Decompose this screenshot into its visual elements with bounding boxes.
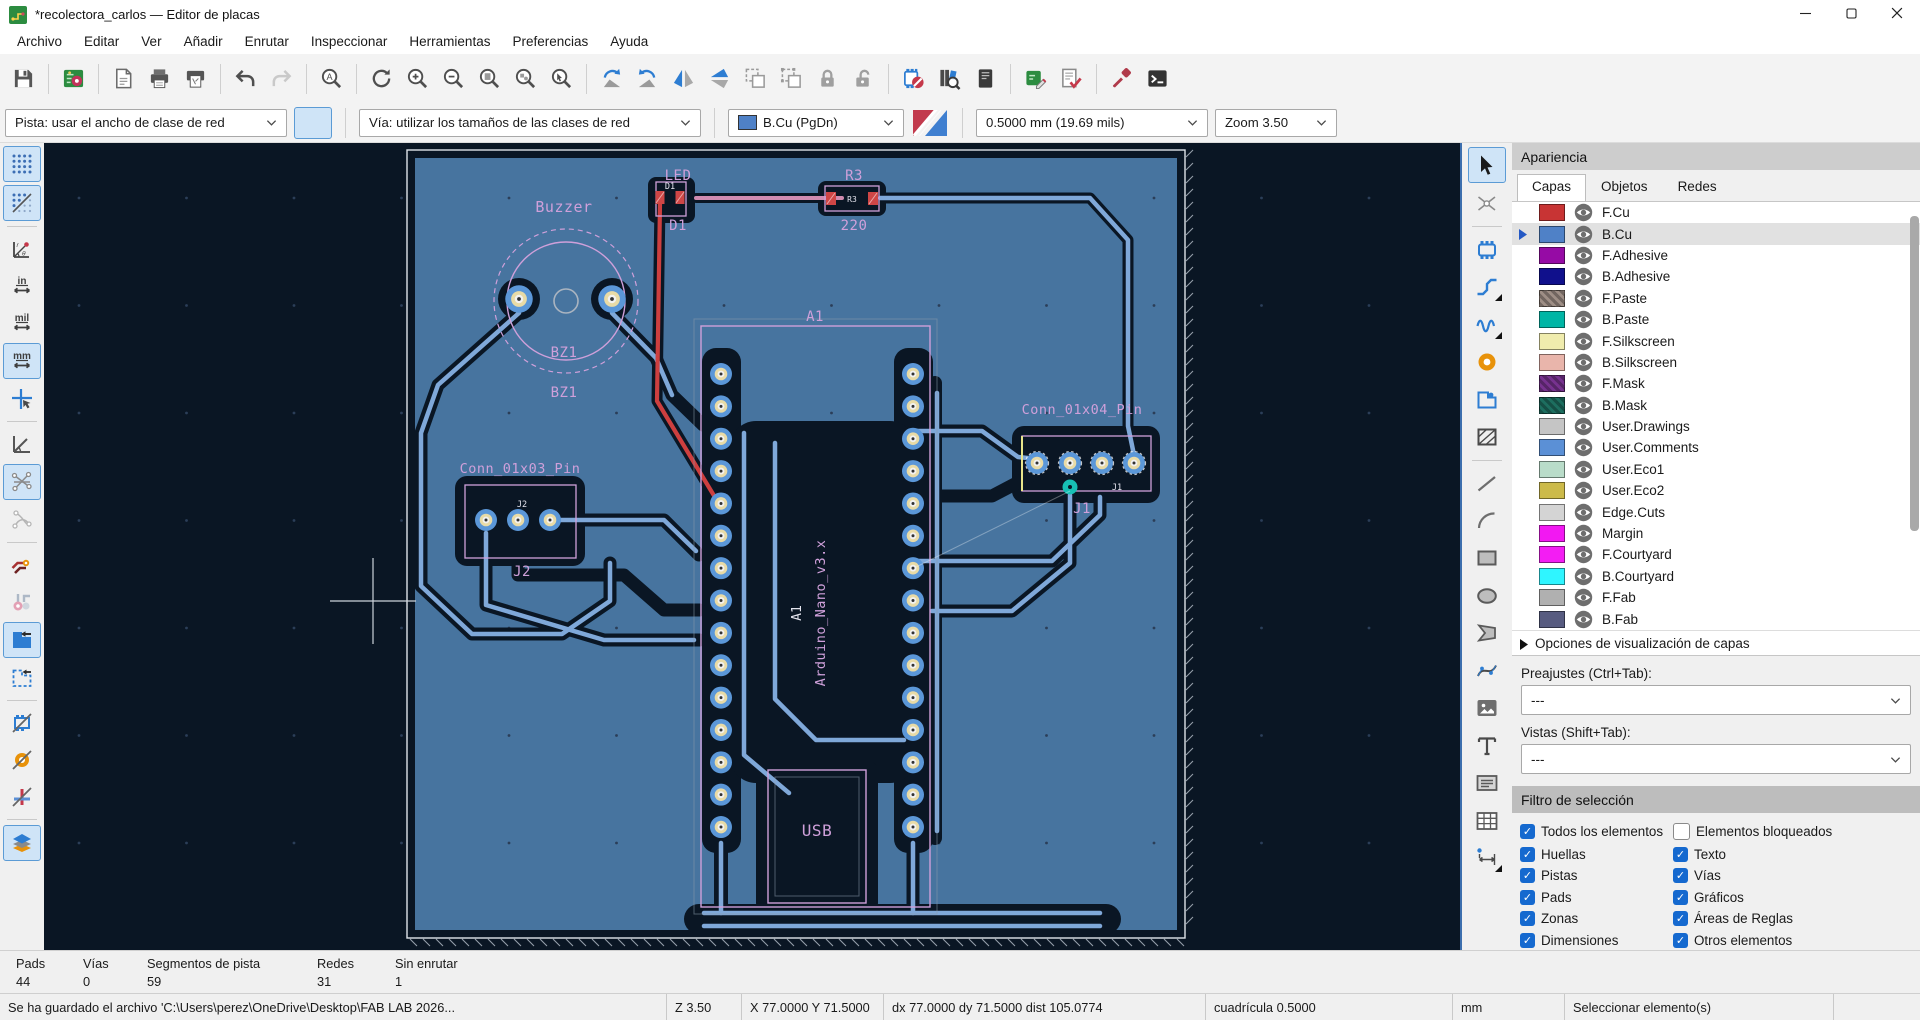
menu-enrutar[interactable]: Enrutar: [234, 32, 300, 51]
layer-color-swatch[interactable]: [1539, 354, 1565, 371]
layer-color-swatch: [738, 115, 757, 130]
menu-anadir[interactable]: Añadir: [173, 32, 234, 51]
filter-item-label: Vías: [1694, 868, 1721, 883]
layer-name: F.Courtyard: [1602, 547, 1672, 562]
svg-text:θ: θ: [22, 251, 26, 258]
presets-value: ---: [1531, 693, 1545, 708]
presets-dropdown[interactable]: ---: [1521, 685, 1911, 715]
led-ref-small[interactable]: D1: [665, 182, 675, 192]
toolbar-separator: [1472, 460, 1502, 461]
board-setup-button[interactable]: [56, 61, 91, 96]
redo-icon: [270, 67, 293, 90]
eye-icon[interactable]: [1574, 524, 1593, 543]
tab-redes[interactable]: Redes: [1663, 174, 1732, 201]
checkbox-icon[interactable]: ✓: [1673, 890, 1688, 905]
maximize-icon: [1846, 6, 1857, 24]
angle-45-icon: [10, 432, 34, 456]
units-mils-button[interactable]: mil: [4, 306, 40, 340]
unrouted-count-label: Sin enrutar: [395, 956, 515, 971]
flip-board-view-button[interactable]: [911, 108, 949, 138]
j2-footprint-name[interactable]: Conn_01x03_Pin: [460, 461, 581, 477]
via-icon: [1475, 350, 1499, 374]
j1-footprint-name[interactable]: Conn_01x04_Pin: [1022, 402, 1143, 418]
buzzer-ref[interactable]: BZ1: [551, 345, 578, 361]
layer-row[interactable]: Edge.Cuts: [1512, 501, 1920, 522]
filter-item[interactable]: ✓ Otros elementos: [1673, 933, 1916, 948]
layer-color-swatch[interactable]: [1539, 226, 1565, 243]
menu-inspeccionar[interactable]: Inspeccionar: [300, 32, 399, 51]
via-hole: [1068, 485, 1072, 489]
layers-scrollbar[interactable]: [1910, 216, 1919, 531]
eye-icon[interactable]: [1574, 417, 1593, 436]
views-dropdown[interactable]: ---: [1521, 744, 1911, 774]
find-button[interactable]: A: [314, 61, 349, 96]
undo-button[interactable]: [228, 61, 263, 96]
board-stackup-button[interactable]: [968, 61, 1003, 96]
layer-color-swatch[interactable]: [1539, 611, 1565, 628]
pad-display-button[interactable]: [4, 585, 40, 619]
eye-icon[interactable]: [1574, 203, 1593, 222]
toolbar-separator: [7, 819, 37, 820]
layer-row[interactable]: B.Paste: [1512, 309, 1920, 330]
add-text-button[interactable]: [1469, 729, 1505, 763]
flip-horizontal-icon: [672, 67, 695, 90]
board-stackup-icon: [974, 67, 997, 90]
units-inches-button[interactable]: in: [4, 269, 40, 303]
draw-rectangle-button[interactable]: [1469, 541, 1505, 575]
zoom-in-button[interactable]: [400, 61, 435, 96]
layer-color-swatch[interactable]: [1539, 568, 1565, 585]
plot-button[interactable]: [178, 61, 213, 96]
layer-color-swatch[interactable]: [1539, 482, 1565, 499]
drc-button[interactable]: [1054, 61, 1089, 96]
add-via-button[interactable]: [1469, 345, 1505, 379]
draw-circle-button[interactable]: [1469, 579, 1505, 613]
print-button[interactable]: [142, 61, 177, 96]
left-toolbar: θr in mil mm: [0, 143, 44, 950]
draw-line-button[interactable]: [1469, 466, 1505, 500]
via-size-dropdown[interactable]: Vía: utilizar los tamaños de las clases …: [359, 109, 701, 137]
arduino-footprint-name[interactable]: Arduino_Nano_v3.x: [813, 540, 829, 687]
cursor-crosshair: [330, 558, 416, 644]
eye-icon[interactable]: [1574, 332, 1593, 351]
layer-row[interactable]: User.Eco2: [1512, 480, 1920, 501]
layer-row[interactable]: F.Courtyard: [1512, 544, 1920, 565]
led-ref[interactable]: D1: [669, 218, 687, 234]
filter-item[interactable]: ✓ Zonas: [1520, 911, 1673, 926]
layer-display-options[interactable]: Opciones de visualización de capas: [1512, 630, 1920, 656]
checkbox-icon[interactable]: ✓: [1520, 868, 1535, 883]
layer-row[interactable]: User.Comments: [1512, 437, 1920, 458]
update-footprints-button[interactable]: [896, 61, 931, 96]
filter-item[interactable]: ✓ Todos los elementos: [1520, 824, 1673, 839]
zone-outline-icon: [10, 666, 34, 690]
route-tracks-button[interactable]: [1469, 270, 1505, 304]
zoom-selection-icon: [550, 67, 573, 90]
main-toolbar: A: [0, 54, 1920, 103]
active-layer-value: B.Cu (PgDn): [763, 115, 838, 130]
menu-archivo[interactable]: Archivo: [6, 32, 73, 51]
units-mm-button[interactable]: mm: [3, 343, 41, 379]
hide-tracks-button[interactable]: [4, 780, 40, 814]
j2-ref-small[interactable]: J2: [517, 500, 527, 510]
select-arrow-icon: [1475, 153, 1499, 177]
layer-row[interactable]: B.Fab: [1512, 608, 1920, 629]
toolbar-separator: [1096, 64, 1097, 94]
curved-ratsnest-button[interactable]: [4, 503, 40, 537]
chevron-down-icon: [883, 119, 894, 127]
local-ratsnest-button[interactable]: [1469, 187, 1505, 221]
arduino-ref-vertical[interactable]: A1: [790, 605, 805, 621]
zone-filled-button[interactable]: [3, 622, 41, 658]
eye-icon[interactable]: [1574, 267, 1593, 286]
add-image-button[interactable]: [1469, 691, 1505, 725]
layer-row[interactable]: B.Courtyard: [1512, 566, 1920, 587]
refresh-button[interactable]: [364, 61, 399, 96]
crosshair-icon: [10, 387, 34, 411]
group-button[interactable]: [738, 61, 773, 96]
textbox-icon: [1475, 771, 1499, 795]
eye-icon[interactable]: [1574, 289, 1593, 308]
layer-row[interactable]: User.Eco1: [1512, 459, 1920, 480]
local-ratsnest-icon: [1475, 192, 1499, 216]
menu-herramientas[interactable]: Herramientas: [398, 32, 501, 51]
tab-objetos[interactable]: Objetos: [1586, 174, 1663, 201]
redo-button[interactable]: [264, 61, 299, 96]
show-grid-button[interactable]: [3, 146, 41, 182]
layer-stack-icon: [10, 831, 34, 855]
menu-ver[interactable]: Ver: [130, 32, 172, 51]
counts-bar: Pads44 Vías0 Segmentos de pista59 Redes3…: [0, 950, 1920, 993]
zoom-fit-button[interactable]: [472, 61, 507, 96]
track-width-value: Pista: usar el ancho de clase de red: [15, 115, 225, 130]
plugins-icon: [1110, 67, 1133, 90]
maximize-button[interactable]: [1828, 0, 1874, 29]
layer-display-options-label: Opciones de visualización de capas: [1535, 636, 1750, 651]
add-zone-button[interactable]: [1469, 383, 1505, 417]
track-width-value-dropdown[interactable]: 0.5000 mm (19.69 mils): [976, 109, 1208, 137]
status-bar: Se ha guardado el archivo 'C:\Users\pere…: [0, 993, 1920, 1020]
layer-color-swatch[interactable]: [1539, 525, 1565, 542]
filter-item[interactable]: ✓ Texto: [1673, 847, 1916, 862]
table-icon: [1475, 809, 1499, 833]
undo-icon: [234, 67, 257, 90]
menu-ayuda[interactable]: Ayuda: [599, 32, 659, 51]
title-bar: *recolectora_carlos — Editor de placas: [0, 0, 1920, 29]
show-ratsnest-button[interactable]: [3, 464, 41, 500]
filter-item-label: Áreas de Reglas: [1694, 911, 1793, 926]
chevron-down-icon: [680, 119, 691, 127]
eye-icon[interactable]: [1574, 481, 1593, 500]
layer-color-swatch[interactable]: [1539, 268, 1565, 285]
filter-item-label: Pistas: [1541, 868, 1577, 883]
resistor-value[interactable]: 220: [841, 218, 868, 234]
flip-horizontal-button[interactable]: [666, 61, 701, 96]
chevron-down-icon: [1890, 752, 1901, 767]
toolbar-separator: [888, 64, 889, 94]
layer-name: Margin: [1602, 526, 1643, 541]
resistor-ref-small[interactable]: R3: [847, 195, 857, 204]
track-posture-button[interactable]: [294, 107, 332, 139]
track-display-button[interactable]: [4, 548, 40, 582]
track-width-dropdown[interactable]: Pista: usar el ancho de clase de red: [5, 109, 287, 137]
line-icon: [1475, 471, 1499, 495]
close-button[interactable]: [1874, 0, 1920, 29]
toolbar-separator: [98, 64, 99, 94]
checkbox-icon[interactable]: ✓: [1673, 847, 1688, 862]
ungroup-icon: [780, 67, 803, 90]
layer-row[interactable]: F.Fab: [1512, 587, 1920, 608]
grid-icon: [10, 152, 34, 176]
units-mm-icon: mm: [10, 349, 34, 373]
draw-arc-button[interactable]: [1469, 504, 1505, 538]
chevron-down-icon: [1890, 693, 1901, 708]
filter-item[interactable]: ✓ Vías: [1673, 868, 1916, 883]
scripting-console-icon: [1146, 67, 1169, 90]
eye-icon[interactable]: [1574, 588, 1593, 607]
layer-name: B.Mask: [1602, 398, 1647, 413]
eye-icon[interactable]: [1574, 246, 1593, 265]
appearance-panel: Apariencia Capas Objetos Redes F.Cu B.Cu…: [1512, 143, 1920, 950]
layer-name: User.Drawings: [1602, 419, 1690, 434]
text-icon: [1475, 734, 1499, 758]
crosshair-cursor-button[interactable]: [4, 382, 40, 416]
filter-item[interactable]: ✓ Dimensiones: [1520, 933, 1673, 948]
minimize-button[interactable]: [1782, 0, 1828, 29]
segments-count-value: 59: [147, 974, 317, 989]
toolbar-separator: [1010, 64, 1011, 94]
rotate-cw-button[interactable]: [630, 61, 665, 96]
checkbox-icon[interactable]: ✓: [1673, 823, 1690, 840]
checkbox-icon[interactable]: ✓: [1673, 911, 1688, 926]
layer-name: Edge.Cuts: [1602, 505, 1665, 520]
layer-color-swatch[interactable]: [1539, 439, 1565, 456]
zoom-selection-button[interactable]: [544, 61, 579, 96]
filter-item-label: Pads: [1541, 890, 1572, 905]
layer-row[interactable]: Margin: [1512, 523, 1920, 544]
checkbox-icon[interactable]: ✓: [1520, 847, 1535, 862]
checkbox-icon[interactable]: ✓: [1520, 911, 1535, 926]
j1-ref[interactable]: J1: [1073, 501, 1091, 517]
layer-color-swatch[interactable]: [1539, 204, 1565, 221]
filter-item[interactable]: ✓ Gráficos: [1673, 890, 1916, 905]
pad-display-icon: [10, 590, 34, 614]
layer-name: F.Silkscreen: [1602, 334, 1675, 349]
filter-item-label: Elementos bloqueados: [1696, 824, 1832, 839]
rectangle-icon: [1475, 546, 1499, 570]
svg-text:r: r: [17, 242, 20, 249]
layer-row[interactable]: B.Mask: [1512, 395, 1920, 416]
checkbox-icon[interactable]: ✓: [1673, 933, 1688, 948]
j2-pads[interactable]: [475, 509, 561, 531]
eye-icon[interactable]: [1574, 310, 1593, 329]
zoom-objects-button[interactable]: [508, 61, 543, 96]
zone-outline-button[interactable]: [4, 661, 40, 695]
filter-item[interactable]: ✓ Huellas: [1520, 847, 1673, 862]
unlock-button[interactable]: [846, 61, 881, 96]
j1-ref-small[interactable]: J1: [1112, 483, 1122, 493]
presets-label: Preajustes (Ctrl+Tab):: [1521, 666, 1920, 681]
rotate-ccw-button[interactable]: [594, 61, 629, 96]
layer-name: F.Paste: [1602, 291, 1647, 306]
layer-row[interactable]: F.Paste: [1512, 288, 1920, 309]
eye-icon[interactable]: [1574, 374, 1593, 393]
layer-row[interactable]: User.Drawings: [1512, 416, 1920, 437]
layer-row[interactable]: F.Silkscreen: [1512, 330, 1920, 351]
layer-row[interactable]: B.Cu: [1512, 223, 1920, 244]
menu-editar[interactable]: Editar: [73, 32, 130, 51]
limit-45-button[interactable]: [4, 427, 40, 461]
checkbox-icon[interactable]: ✓: [1520, 933, 1535, 948]
eye-icon[interactable]: [1574, 610, 1593, 629]
toolbar-separator: [1472, 226, 1502, 227]
add-rule-area-button[interactable]: [1469, 420, 1505, 454]
resistor-ref[interactable]: R3: [845, 168, 863, 184]
library-browser-icon: [938, 67, 961, 90]
eye-icon[interactable]: [1574, 353, 1593, 372]
board-setup-icon: [62, 67, 85, 90]
eye-icon[interactable]: [1574, 567, 1593, 586]
layer-row[interactable]: F.Adhesive: [1512, 245, 1920, 266]
lock-button[interactable]: [810, 61, 845, 96]
layer-color-swatch[interactable]: [1539, 311, 1565, 328]
layer-row[interactable]: F.Mask: [1512, 373, 1920, 394]
grid-override-icon: [10, 191, 34, 215]
draw-polygon-button[interactable]: [1469, 616, 1505, 650]
app-icon: [9, 6, 27, 24]
plugins-button[interactable]: [1104, 61, 1139, 96]
views-label: Vistas (Shift+Tab):: [1521, 725, 1920, 740]
j2-ref[interactable]: J2: [513, 564, 531, 580]
layer-color-swatch[interactable]: [1539, 504, 1565, 521]
layer-row[interactable]: B.Adhesive: [1512, 266, 1920, 287]
pcb-canvas-area[interactable]: Buzzer BZ1 BZ1 LED D1 D1 R3 R3 220: [44, 143, 1462, 950]
ratsnest-icon: [10, 470, 34, 494]
toolbar-separator: [306, 64, 307, 94]
right-toolbar: [1462, 143, 1512, 950]
arduino-ref[interactable]: A1: [806, 309, 824, 325]
flip-vertical-icon: [708, 67, 731, 90]
layer-color-swatch[interactable]: [1539, 461, 1565, 478]
window-title: *recolectora_carlos — Editor de placas: [35, 7, 260, 22]
print-icon: [148, 67, 171, 90]
toolbar-separator: [356, 64, 357, 94]
add-footprint-button[interactable]: [1469, 233, 1505, 267]
scripting-console-button[interactable]: [1140, 61, 1175, 96]
page-settings-button[interactable]: [106, 61, 141, 96]
layer-row[interactable]: B.Silkscreen: [1512, 352, 1920, 373]
footprint-editor-button[interactable]: [1018, 61, 1053, 96]
status-zoom: Z 3.50: [667, 994, 742, 1020]
filter-item-label: Otros elementos: [1694, 933, 1792, 948]
pads-count-label: Pads: [16, 956, 83, 971]
eye-icon[interactable]: [1574, 545, 1593, 564]
filter-item[interactable]: ✓ Elementos bloqueados: [1673, 823, 1916, 840]
toolbar-separator: [220, 64, 221, 94]
usb-label[interactable]: USB: [802, 821, 832, 840]
selected-arrow-icon: [1519, 228, 1527, 243]
layer-row[interactable]: F.Cu: [1512, 202, 1920, 223]
eye-icon[interactable]: [1574, 438, 1593, 457]
filter-item-label: Dimensiones: [1541, 933, 1618, 948]
filter-item[interactable]: ✓ Pads: [1520, 890, 1673, 905]
add-textbox-button[interactable]: [1469, 766, 1505, 800]
tune-length-button[interactable]: [1469, 308, 1505, 342]
filter-item[interactable]: ✓ Áreas de Reglas: [1673, 911, 1916, 926]
eye-icon[interactable]: [1574, 503, 1593, 522]
layer-name: F.Cu: [1602, 205, 1630, 220]
buzzer-label[interactable]: Buzzer: [535, 198, 592, 216]
unrouted-count-value: 1: [395, 974, 515, 989]
select-tool-button[interactable]: [1468, 147, 1506, 183]
layer-color-swatch[interactable]: [1539, 589, 1565, 606]
layer-name: User.Comments: [1602, 440, 1699, 455]
add-dimension-button[interactable]: [1469, 841, 1505, 875]
layer-color-swatch[interactable]: [1539, 375, 1565, 392]
layer-color-swatch[interactable]: [1539, 333, 1565, 350]
layer-color-swatch[interactable]: [1539, 247, 1565, 264]
update-footprints-icon: [902, 67, 925, 90]
polar-coords-button[interactable]: θr: [4, 232, 40, 266]
lock-icon: [816, 67, 839, 90]
tab-capas[interactable]: Capas: [1517, 174, 1586, 201]
zoom-objects-icon: [514, 67, 537, 90]
menu-preferencias[interactable]: Preferencias: [501, 32, 599, 51]
layer-color-swatch[interactable]: [1539, 397, 1565, 414]
layer-name: F.Fab: [1602, 590, 1636, 605]
unlock-icon: [852, 67, 875, 90]
layer-color-swatch[interactable]: [1539, 290, 1565, 307]
layer-color-swatch[interactable]: [1539, 418, 1565, 435]
layer-contrast-button[interactable]: [3, 825, 41, 861]
save-icon: [12, 67, 35, 90]
eye-icon[interactable]: [1574, 396, 1593, 415]
circle-icon: [1475, 584, 1499, 608]
active-layer-dropdown[interactable]: B.Cu (PgDn): [728, 109, 904, 137]
grid-overrides-button[interactable]: [3, 185, 41, 221]
draw-bezier-button[interactable]: [1469, 654, 1505, 688]
eye-icon[interactable]: [1574, 225, 1593, 244]
add-table-button[interactable]: [1469, 804, 1505, 838]
layer-name: User.Eco2: [1602, 483, 1664, 498]
appearance-tabs: Capas Objetos Redes: [1512, 170, 1920, 201]
ungroup-button[interactable]: [774, 61, 809, 96]
flip-vertical-button[interactable]: [702, 61, 737, 96]
zoom-out-button[interactable]: [436, 61, 471, 96]
buzzer-ref2[interactable]: BZ1: [551, 385, 578, 401]
track-display-icon: [10, 553, 34, 577]
zoom-dropdown[interactable]: Zoom 3.50: [1215, 109, 1337, 137]
save-button[interactable]: [6, 61, 41, 96]
layer-color-swatch[interactable]: [1539, 546, 1565, 563]
filter-item-label: Texto: [1694, 847, 1726, 862]
toolbar-separator: [7, 700, 37, 701]
checkbox-icon[interactable]: ✓: [1673, 868, 1688, 883]
hide-pads-button[interactable]: [4, 743, 40, 777]
nets-count-value: 31: [317, 974, 395, 989]
hide-footprints-button[interactable]: [4, 706, 40, 740]
pcb-canvas[interactable]: Buzzer BZ1 BZ1 LED D1 D1 R3 R3 220: [44, 143, 1460, 950]
checkbox-icon[interactable]: ✓: [1520, 890, 1535, 905]
layers-list: F.Cu B.Cu F.Adhesive B.Adhesive F.Paste …: [1512, 201, 1920, 630]
filter-item[interactable]: ✓ Pistas: [1520, 868, 1673, 883]
window-controls: [1782, 0, 1920, 29]
layer-name: F.Adhesive: [1602, 248, 1668, 263]
library-browser-button[interactable]: [932, 61, 967, 96]
filter-item-label: Gráficos: [1694, 890, 1744, 905]
eye-icon[interactable]: [1574, 460, 1593, 479]
checkbox-icon[interactable]: ✓: [1520, 824, 1535, 839]
